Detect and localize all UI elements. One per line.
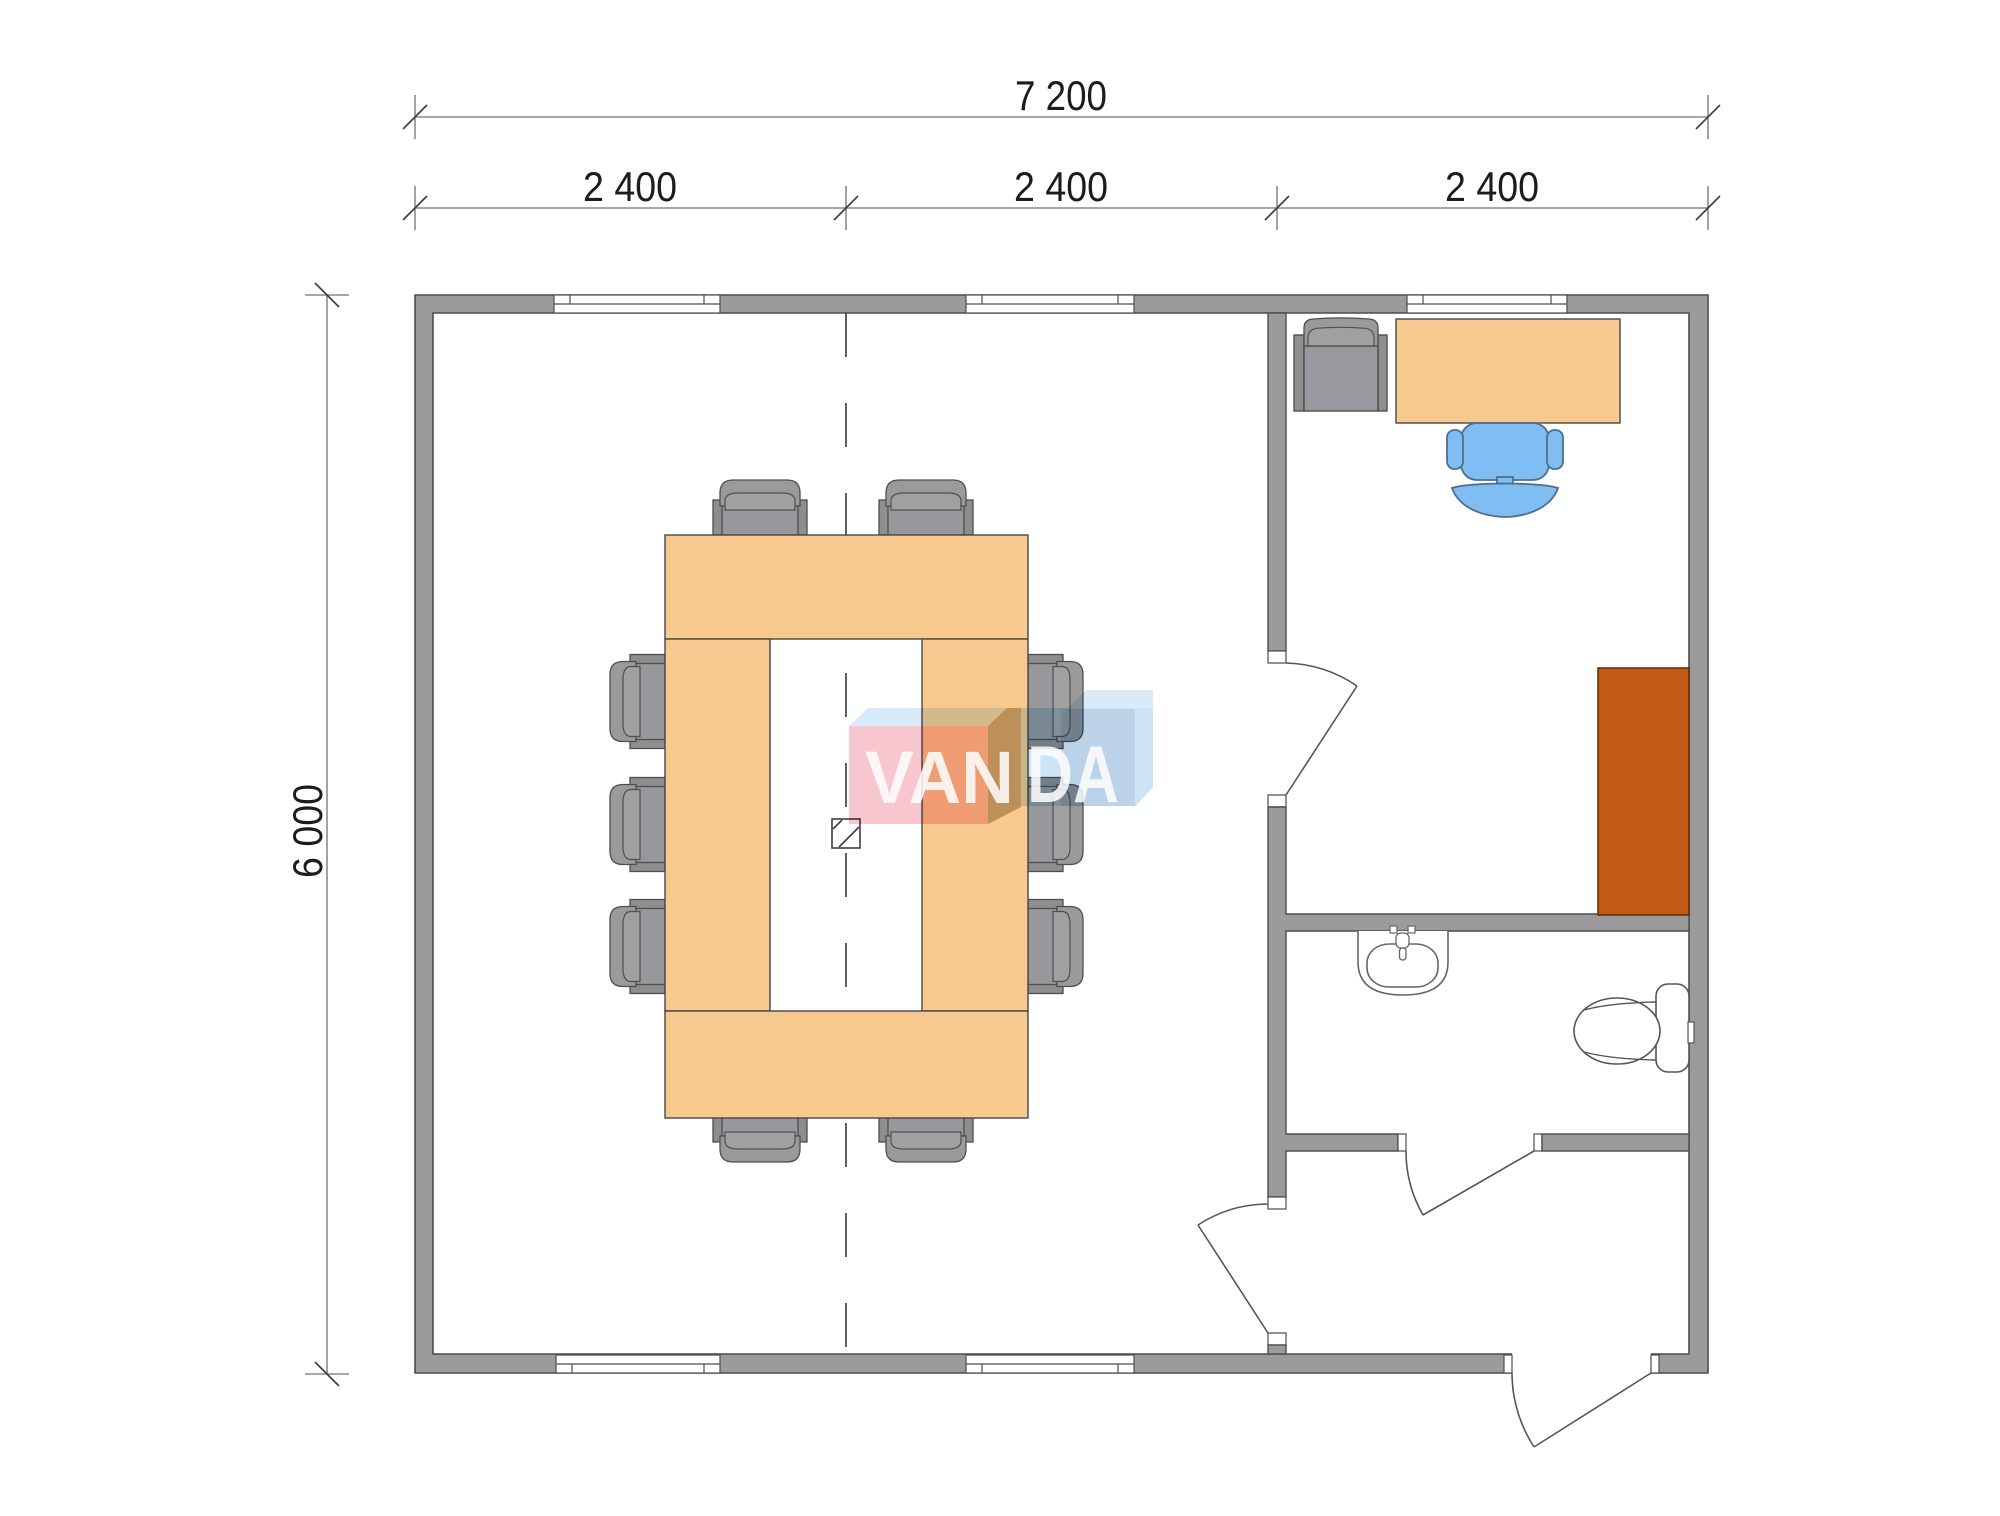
svg-text:2 400: 2 400 <box>1014 163 1108 210</box>
svg-text:DA: DA <box>1027 730 1119 820</box>
svg-text:7 200: 7 200 <box>1015 72 1107 119</box>
svg-text:VAN: VAN <box>865 736 1014 819</box>
svg-text:2 400: 2 400 <box>1445 163 1539 210</box>
svg-text:2 400: 2 400 <box>583 163 677 210</box>
svg-text:6 000: 6 000 <box>284 784 331 878</box>
